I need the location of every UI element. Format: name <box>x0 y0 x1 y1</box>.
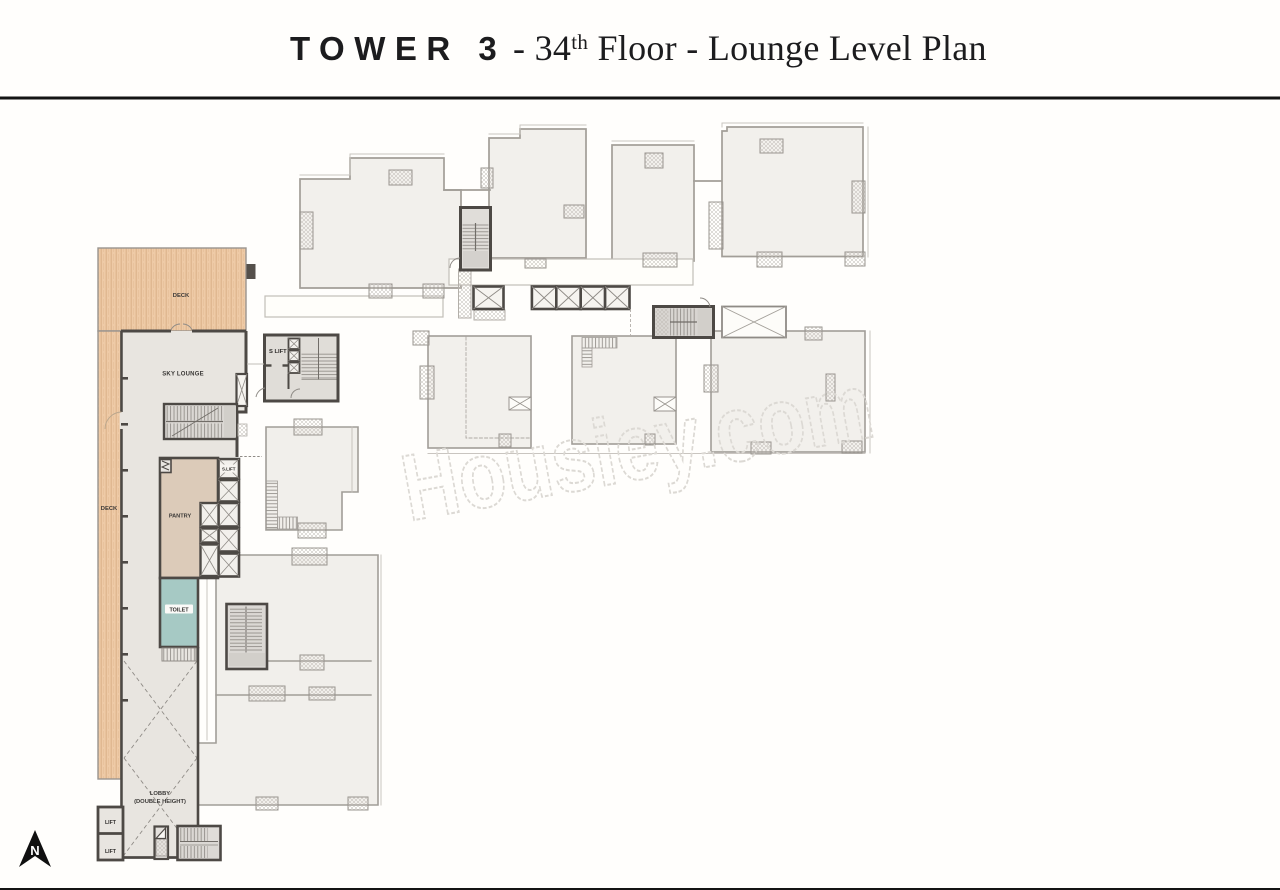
svg-text:DECK: DECK <box>173 293 190 299</box>
svg-text:DECK: DECK <box>101 506 118 512</box>
svg-text:LIFT: LIFT <box>105 849 117 855</box>
svg-text:TOILET: TOILET <box>169 607 189 613</box>
svg-text:LIFT: LIFT <box>105 820 117 826</box>
svg-text:PANTRY: PANTRY <box>169 514 192 520</box>
svg-text:SKY LOUNGE: SKY LOUNGE <box>162 372 204 378</box>
svg-text:N: N <box>30 843 39 858</box>
svg-text:(DOUBLE HEIGHT): (DOUBLE HEIGHT) <box>134 799 186 805</box>
svg-text:TOWER 3: TOWER 3 <box>290 30 506 67</box>
svg-text:S LIFT: S LIFT <box>269 349 287 355</box>
svg-text:LOBBY: LOBBY <box>150 791 170 797</box>
svg-text:S.LIFT: S.LIFT <box>222 467 236 472</box>
